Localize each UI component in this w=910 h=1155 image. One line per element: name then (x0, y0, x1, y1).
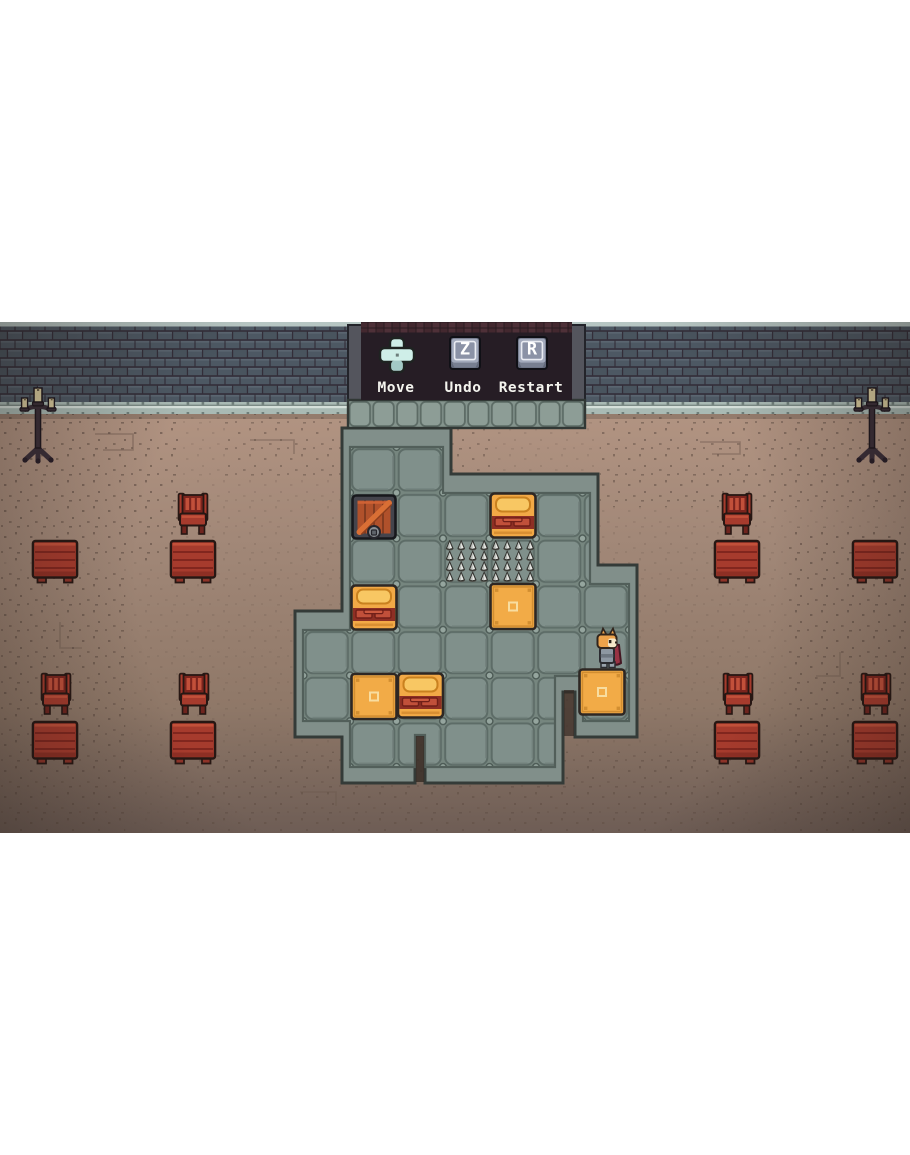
restart-key-icon[interactable]: R (517, 337, 547, 369)
game-viewport: Move Z Undo R Restart (0, 322, 910, 833)
door-slot-bottom (416, 736, 424, 782)
undo-label: Undo (445, 380, 482, 396)
game-scene: Move Z Undo R Restart (0, 322, 910, 833)
bed-sprite (352, 586, 397, 630)
page: Move Z Undo R Restart (0, 0, 910, 1155)
key-z-letter: Z (460, 340, 470, 360)
puzzle-room (295, 428, 637, 783)
table-sprite (33, 722, 77, 764)
table-sprite (853, 722, 897, 764)
controls-panel: Move Z Undo R Restart (348, 322, 585, 428)
move-label: Move (378, 380, 415, 396)
bed-sprite (491, 494, 536, 538)
locked-wooden-crate (353, 496, 396, 539)
table-sprite (171, 541, 215, 583)
panel-brick-trim (361, 322, 572, 334)
table-sprite (33, 541, 77, 583)
table-sprite (171, 722, 215, 764)
crate-sprite (491, 584, 536, 629)
door-slot-right (564, 690, 574, 736)
crate-sprite (580, 670, 625, 715)
bed-sprite (398, 674, 443, 718)
table-sprite (715, 541, 759, 583)
table-sprite (715, 722, 759, 764)
key-r-letter: R (527, 340, 538, 360)
panel-ledge (348, 400, 585, 428)
restart-label: Restart (499, 380, 564, 396)
crate-sprite (352, 674, 397, 719)
spike-tiles (444, 540, 536, 582)
table-sprite (853, 541, 897, 583)
undo-key-icon[interactable]: Z (450, 337, 480, 369)
